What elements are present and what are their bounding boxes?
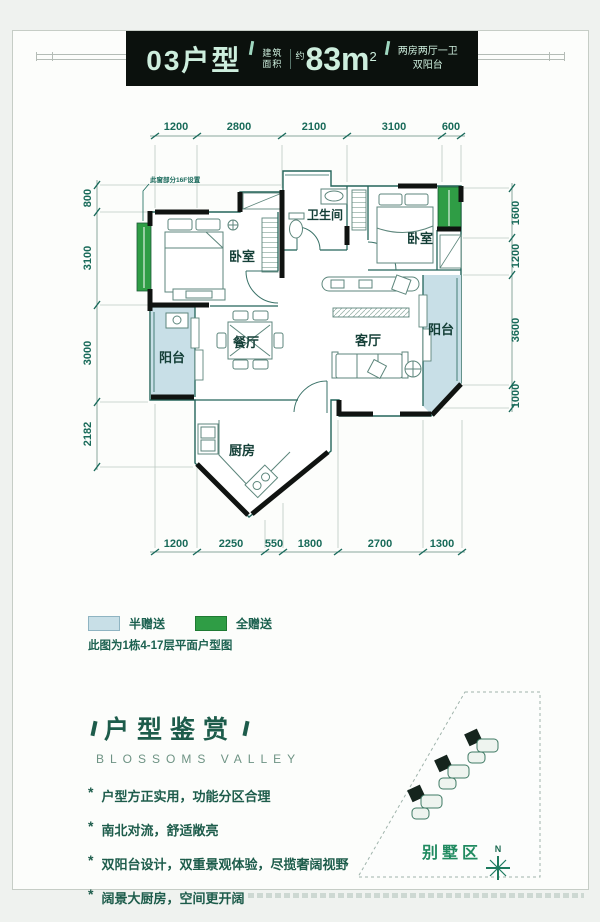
bullet-text: 双阳台设计，双重景观体验，尽揽奢阔视野 bbox=[101, 854, 348, 873]
dim-left: 2182 bbox=[82, 422, 94, 446]
appreciation-bullets: * 户型方正实用，功能分区合理 * 南北对流，舒适敞亮 * 双阳台设计，双重景观… bbox=[88, 786, 374, 907]
closet bbox=[352, 190, 366, 230]
room-label-balcony-left: 阳台 bbox=[159, 350, 185, 365]
dim-top: 1200 bbox=[164, 121, 188, 133]
room-label-balcony-right: 阳台 bbox=[428, 322, 454, 337]
header-line-tick bbox=[549, 52, 550, 61]
header-line-tick bbox=[52, 52, 53, 61]
legend-swatch-full-gift bbox=[195, 616, 227, 631]
bullet-item: * 双阳台设计，双重景观体验，尽揽奢阔视野 bbox=[88, 854, 374, 873]
dim-bottom: 2700 bbox=[368, 538, 392, 550]
tv-wall bbox=[333, 308, 409, 317]
header-line-right-1 bbox=[477, 54, 565, 55]
area-label-top: 建筑 bbox=[262, 48, 282, 58]
dim-bottom: 550 bbox=[265, 538, 283, 550]
appreciation-subtitle: BLOSSOMS VALLEY bbox=[96, 752, 374, 766]
room-label-bedroom-left: 卧室 bbox=[229, 249, 255, 264]
dim-bottom: 1200 bbox=[164, 538, 188, 550]
site-area-label: 别墅区 bbox=[421, 844, 482, 862]
area-divider bbox=[290, 49, 291, 69]
legend: 半赠送 全赠送 bbox=[88, 615, 302, 632]
legend-label-half-gift: 半赠送 bbox=[129, 615, 165, 632]
dim-top: 600 bbox=[442, 121, 460, 133]
appreciation-title-row: 户型鉴赏 bbox=[84, 710, 374, 746]
bullet-text: 阔景大厨房，空间更开阔 bbox=[101, 888, 244, 907]
legend-label-full-gift: 全赠送 bbox=[236, 615, 272, 632]
annotation-text: 此窗部分16F设置 bbox=[150, 175, 201, 184]
area-label: 建筑 面积 bbox=[262, 48, 282, 69]
bullet-star-icon: * bbox=[88, 853, 93, 873]
layout-desc-line1: 两房两厅一卫 bbox=[398, 45, 458, 59]
area-approx: 约 bbox=[295, 49, 304, 62]
header-banner: 03户型 建筑 面积 约 83m 2 两房两厅一卫 双阳台 bbox=[126, 31, 478, 86]
bullet-star-icon: * bbox=[88, 785, 93, 805]
room-label-kitchen: 厨房 bbox=[229, 443, 255, 458]
dim-left: 3100 bbox=[82, 246, 94, 270]
layout-desc: 两房两厅一卫 双阳台 bbox=[398, 45, 458, 72]
header-line-tick bbox=[36, 52, 37, 61]
bullet-item: * 南北对流，舒适敞亮 bbox=[88, 820, 374, 839]
legend-note: 此图为1栋4-17层平面户型图 bbox=[88, 637, 232, 653]
compass-north-label: N bbox=[495, 844, 502, 854]
dim-right: 3600 bbox=[510, 318, 522, 342]
title-tick-icon bbox=[90, 720, 97, 736]
bullet-text: 户型方正实用，功能分区合理 bbox=[101, 786, 270, 805]
room-label-dining: 餐厅 bbox=[232, 335, 259, 350]
bullet-star-icon: * bbox=[88, 887, 93, 907]
dim-left: 3000 bbox=[82, 341, 94, 365]
layout-desc-line2: 双阳台 bbox=[398, 59, 458, 73]
title-tick-icon bbox=[242, 720, 249, 736]
header-line-right-2 bbox=[477, 59, 565, 60]
room-label-bathroom: 卫生间 bbox=[307, 207, 343, 222]
dim-bottom: 2250 bbox=[219, 538, 243, 550]
room-label-living: 客厅 bbox=[355, 333, 381, 348]
dim-top: 3100 bbox=[382, 121, 406, 133]
appreciation-title: 户型鉴赏 bbox=[104, 710, 236, 746]
bullet-item: * 户型方正实用，功能分区合理 bbox=[88, 786, 374, 805]
room-label-bedroom-right: 卧室 bbox=[407, 231, 433, 246]
site-plan: 别墅区 N bbox=[358, 692, 540, 880]
appreciation-section: 户型鉴赏 BLOSSOMS VALLEY * 户型方正实用，功能分区合理 * 南… bbox=[84, 710, 374, 922]
divider-tick-icon bbox=[385, 41, 390, 55]
header-line-tick bbox=[564, 52, 565, 61]
dim-bottom: 1800 bbox=[298, 538, 322, 550]
bullet-text: 南北对流，舒适敞亮 bbox=[101, 820, 218, 839]
area-value: 83m bbox=[305, 43, 369, 75]
bullet-star-icon: * bbox=[88, 819, 93, 839]
disclaimer-strip bbox=[248, 893, 584, 898]
dim-left: 800 bbox=[82, 189, 94, 207]
header-line-left-2 bbox=[36, 59, 127, 60]
area-sup: 2 bbox=[370, 49, 377, 64]
legend-swatch-half-gift bbox=[88, 616, 120, 631]
wardrobe bbox=[262, 218, 278, 272]
dim-top: 2100 bbox=[302, 121, 326, 133]
header-line-left-1 bbox=[36, 54, 127, 55]
divider-tick-icon bbox=[249, 41, 254, 55]
dim-right: 1200 bbox=[510, 244, 522, 268]
area-block: 建筑 面积 约 83m 2 bbox=[262, 43, 376, 75]
dim-right: 1600 bbox=[510, 201, 522, 225]
dim-bottom: 1300 bbox=[430, 538, 454, 550]
dim-right: 1000 bbox=[510, 384, 522, 408]
area-label-bottom: 面积 bbox=[262, 59, 282, 69]
dim-top: 2800 bbox=[227, 121, 251, 133]
unit-title: 03户型 bbox=[146, 39, 241, 79]
